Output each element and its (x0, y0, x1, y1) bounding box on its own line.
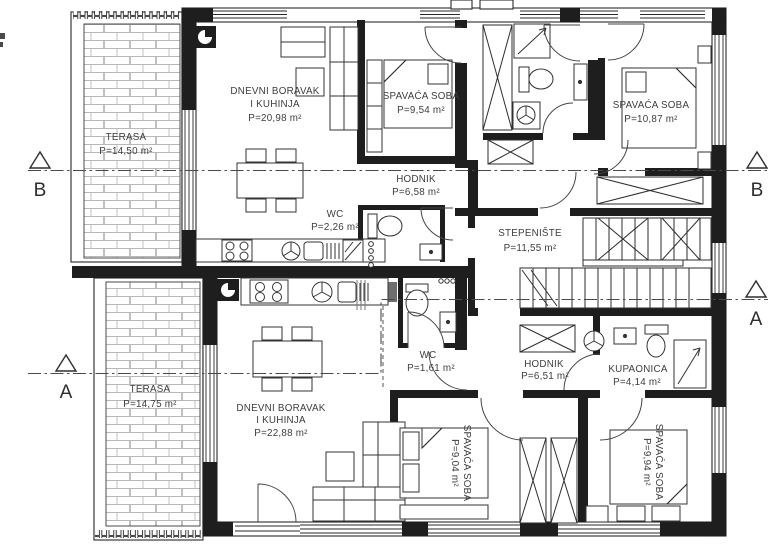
shaft-lower-2 (551, 438, 577, 523)
marker-letter-a-right: A (750, 309, 763, 330)
closet-bedroom-right (597, 177, 703, 204)
label-spavaca-upper-right-area: P=10,87 m² (624, 114, 678, 125)
nightstand (698, 152, 711, 169)
label-hodnik-lower-name: HODNIK (524, 359, 564, 370)
label-wc-upper-name: WC (327, 209, 344, 220)
vent-dots (439, 279, 455, 283)
bed-foot-rail (400, 505, 488, 519)
label-hodnik-lower-area: P=6,51 m² (521, 371, 569, 382)
shaft-top-middle (483, 25, 512, 130)
label-stepeniste-area: P=11,55 m² (504, 243, 557, 254)
closet-hodnik-upper (488, 140, 533, 164)
floor-plan-svg: B B A A TERASA P=14,50 m² DNEVNI BORAVAK… (0, 0, 768, 560)
sink-lower (338, 282, 356, 302)
label-spavaca-upper-right-name: SPAVAĆA SOBA (613, 100, 690, 111)
boiler-lower (217, 279, 239, 301)
bedroom-lower-mid-furniture (400, 428, 488, 519)
label-spavaca-upper-left-name: SPAVAĆA SOBA (383, 91, 460, 102)
label-terasa-upper-area: P=14,50 m² (99, 146, 153, 157)
label-kupaonica-area: P=4,14 m² (613, 377, 661, 388)
boiler-upper (194, 26, 216, 48)
shaft-lower-1 (520, 438, 546, 523)
toilet-tank (368, 214, 377, 238)
toilet-bowl (529, 69, 553, 89)
balustrade-top (73, 11, 180, 19)
label-wc-upper-area: P=2,26 m² (311, 222, 359, 233)
kitchen-lower (241, 278, 388, 310)
basin-icon-upper (282, 242, 300, 260)
label-spavaca-lower-right-name: SPAVAĆA SOBA (653, 424, 664, 501)
label-dnevni-lower-area: P=22,88 m² (254, 428, 308, 439)
nightstand (698, 46, 711, 63)
label-terasa-upper-name: TERASA (106, 132, 147, 143)
coffee-table-lower (326, 452, 354, 481)
label-dnevni-upper-line1: DNEVNI BORAVAK (230, 86, 319, 97)
label-hodnik-upper-name: HODNIK (396, 174, 436, 185)
basin-icon-hodnik (584, 331, 604, 351)
label-dnevni-upper-line2: I KUHINJA (250, 99, 300, 110)
marker-letter-b-right: B (751, 180, 764, 201)
label-spavaca-lower-mid-name: SPAVAĆA SOBA (461, 425, 472, 502)
label-stepeniste-name: STEPENIŠTE (498, 228, 562, 239)
floor-plan: B B A A TERASA P=14,50 m² DNEVNI BORAVAK… (0, 0, 768, 560)
pillow (617, 506, 645, 521)
balustrade-bottom (95, 530, 201, 538)
pillow (626, 72, 646, 92)
pillow (403, 432, 419, 460)
toilet-tank (645, 325, 668, 334)
toilet-tank (519, 67, 529, 92)
label-dnevni-upper-area: P=20,98 m² (248, 113, 302, 124)
toilet-bowl (378, 216, 402, 236)
basin-icon-lower (312, 282, 332, 302)
label-dnevni-lower-line1: DNEVNI BORAVAK (236, 403, 325, 414)
label-kupaonica-name: KUPAONICA (608, 364, 667, 375)
washing-machine (513, 102, 540, 129)
pillow (428, 64, 448, 84)
toilet-bowl (647, 335, 665, 357)
label-wc-lower-name: WC (420, 350, 437, 361)
closet-hodnik-lower (520, 325, 575, 352)
label-spavaca-upper-left-area: P=9,54 m² (397, 105, 445, 116)
label-spavaca-lower-right-area: P=9,94 m² (641, 438, 652, 486)
nightstand (586, 506, 608, 522)
label-hodnik-upper-area: P=6,58 m² (392, 187, 440, 198)
marker-letter-a-left: A (60, 382, 73, 403)
pillow (652, 506, 680, 521)
hodnik-lower-fixtures (584, 331, 604, 351)
marker-letter-b-left: B (34, 180, 47, 201)
kitchen-upper (196, 239, 385, 262)
appliance-upper (343, 240, 363, 262)
label-dnevni-lower-line2: I KUHINJA (256, 415, 306, 426)
label-terasa-lower-name: TERASA (130, 384, 171, 395)
label-terasa-lower-area: P=14,75 m² (123, 399, 177, 410)
label-spavaca-lower-mid-area: P=9,04 m² (449, 439, 460, 487)
pillow (403, 464, 419, 492)
label-wc-lower-area: P=1,61 m² (407, 363, 455, 374)
sink-upper (304, 242, 323, 260)
